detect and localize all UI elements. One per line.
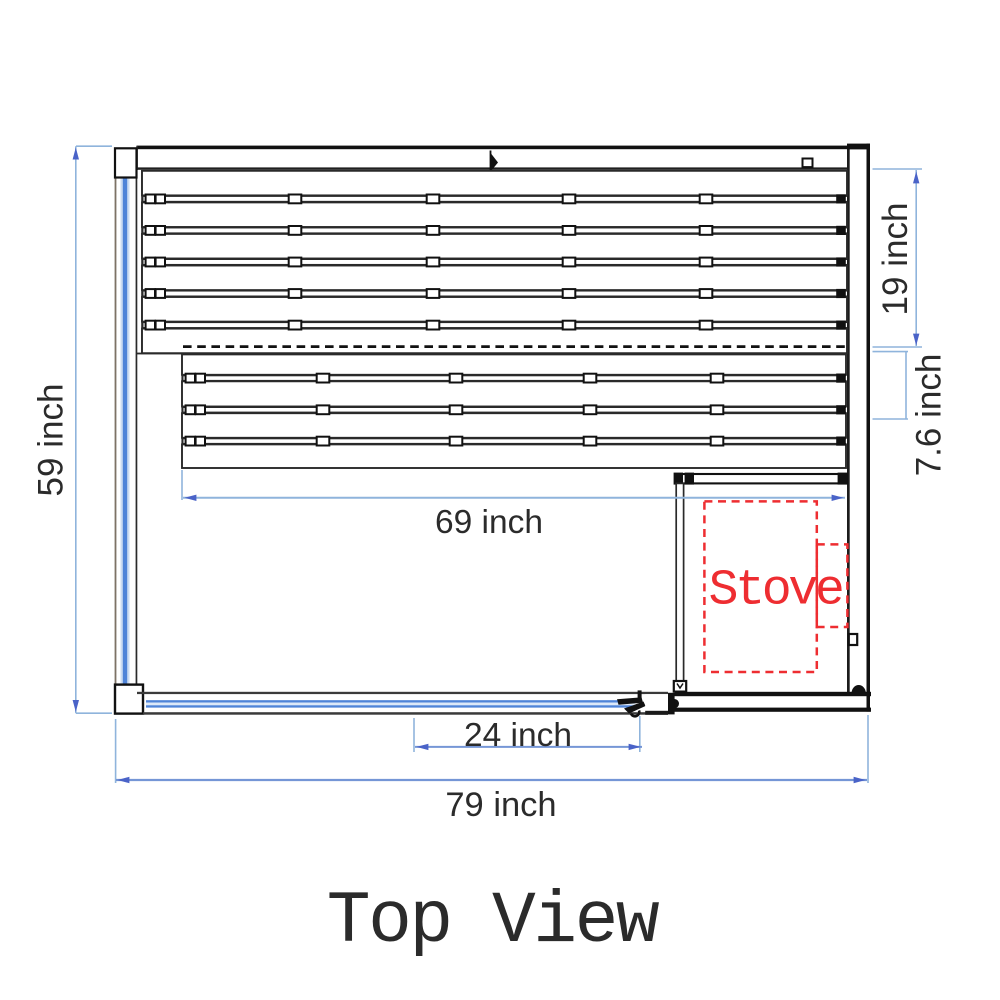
svg-text:69 inch: 69 inch: [435, 504, 543, 541]
svg-text:19 inch: 19 inch: [876, 203, 915, 316]
svg-text:24 inch: 24 inch: [464, 717, 572, 754]
svg-text:59 inch: 59 inch: [32, 384, 71, 497]
svg-text:79 inch: 79 inch: [445, 786, 556, 824]
svg-text:Stove: Stove: [708, 563, 841, 620]
svg-text:7.6 inch: 7.6 inch: [910, 354, 949, 477]
svg-text:Top View: Top View: [327, 880, 660, 963]
